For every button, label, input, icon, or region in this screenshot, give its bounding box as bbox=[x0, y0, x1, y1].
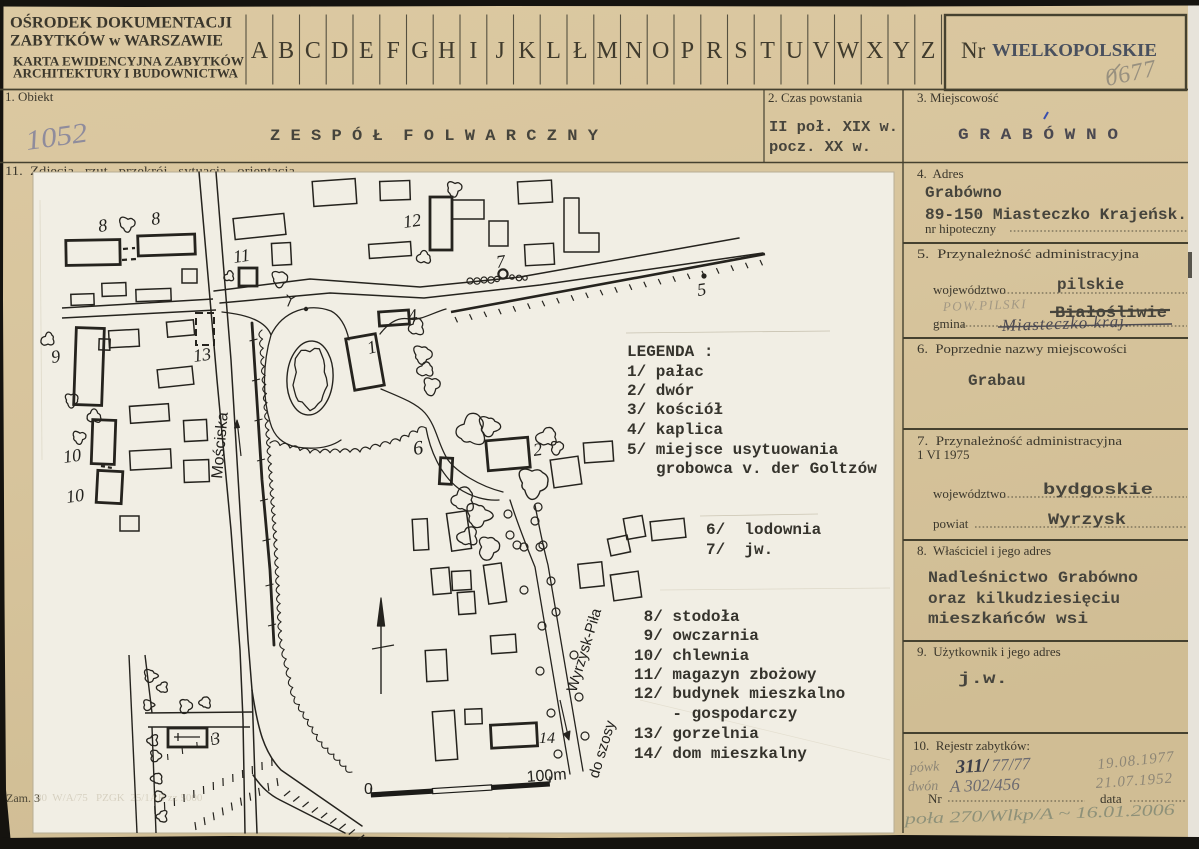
svg-text:Z E S P Ó Ł F O L W A R C Z N: Z E S P Ó Ł F O L W A R C Z N Y bbox=[270, 126, 598, 145]
svg-text:M: M bbox=[596, 38, 617, 64]
svg-text:POW.PILSKI: POW.PILSKI bbox=[942, 296, 1028, 314]
svg-text:K: K bbox=[518, 38, 536, 64]
svg-text:80 W/A/75 PZGK 25/1AB zz 5: 80 W/A/75 PZGK 25/1AB zz 5000 bbox=[36, 792, 203, 804]
svg-text:6. Poprzednie nazwy miejscowo: 6. Poprzednie nazwy miejscowości bbox=[917, 341, 1127, 356]
svg-text:B: B bbox=[278, 38, 294, 64]
svg-text:Nadleśnictwo Grabówno: Nadleśnictwo Grabówno bbox=[928, 569, 1138, 587]
svg-text:grobowca v. der Goltzów: grobowca v. der Goltzów bbox=[656, 460, 877, 478]
svg-text:10: 10 bbox=[65, 485, 86, 507]
svg-text:R: R bbox=[706, 38, 722, 64]
svg-text:W: W bbox=[837, 38, 860, 64]
svg-text:D: D bbox=[331, 38, 348, 64]
svg-text:4/ kaplica: 4/ kaplica bbox=[627, 421, 723, 439]
svg-text:ARCHITEKTURY I BUDOWNICTWA: ARCHITEKTURY I BUDOWNICTWA bbox=[13, 67, 238, 81]
svg-text:14/ dom mieszkalny: 14/ dom mieszkalny bbox=[634, 745, 807, 763]
svg-text:14: 14 bbox=[539, 730, 555, 747]
svg-text:L: L bbox=[546, 38, 561, 64]
svg-text:5. Przynależność administracy: 5. Przynależność administracyjna bbox=[917, 246, 1139, 261]
svg-text:Nr: Nr bbox=[928, 791, 942, 806]
svg-text:A 302/456: A 302/456 bbox=[948, 775, 1020, 796]
svg-text:ZABYTKÓW w WARSZAWIE: ZABYTKÓW w WARSZAWIE bbox=[10, 33, 223, 50]
svg-text:pilskie: pilskie bbox=[1057, 276, 1124, 294]
svg-text:U: U bbox=[786, 38, 803, 64]
svg-text:3. Miejscowość: 3. Miejscowość bbox=[917, 90, 999, 105]
svg-text:j.w.: j.w. bbox=[958, 670, 1008, 688]
svg-text:V: V bbox=[812, 38, 830, 64]
svg-text:O: O bbox=[652, 38, 669, 64]
svg-text:9/ owczarnia: 9/ owczarnia bbox=[634, 627, 759, 645]
svg-text:13/ gorzelnia: 13/ gorzelnia bbox=[634, 725, 759, 743]
svg-text:11: 11 bbox=[232, 245, 251, 267]
svg-text:13: 13 bbox=[192, 344, 213, 366]
svg-text:10: 10 bbox=[62, 445, 83, 467]
svg-text:77/77: 77/77 bbox=[991, 754, 1032, 775]
svg-text:LEGENDA :: LEGENDA : bbox=[627, 343, 713, 361]
svg-text:2/ dwór: 2/ dwór bbox=[627, 382, 694, 400]
svg-text:1 VI 1975: 1 VI 1975 bbox=[917, 447, 969, 462]
svg-text:gmina: gmina bbox=[933, 316, 966, 331]
svg-text:12: 12 bbox=[402, 210, 423, 232]
svg-text:F: F bbox=[386, 38, 399, 64]
svg-text:mieszkańców wsi: mieszkańców wsi bbox=[928, 610, 1088, 628]
svg-text:1. Obiekt: 1. Obiekt bbox=[5, 89, 54, 104]
svg-text:oraz kilkudziesięciu: oraz kilkudziesięciu bbox=[928, 590, 1120, 608]
svg-text:województwo: województwo bbox=[933, 282, 1006, 297]
svg-text:100m: 100m bbox=[526, 766, 567, 786]
svg-text:1/ pałac: 1/ pałac bbox=[627, 363, 704, 381]
svg-text:Grabau: Grabau bbox=[968, 372, 1026, 390]
svg-text:G: G bbox=[411, 38, 428, 64]
svg-text:10. Rejestr zabytków:: 10. Rejestr zabytków: bbox=[913, 738, 1030, 753]
svg-text:E: E bbox=[359, 38, 374, 64]
svg-text:6/ lodownia: 6/ lodownia bbox=[706, 521, 822, 539]
svg-text:województwo: województwo bbox=[933, 486, 1006, 501]
svg-text:Y: Y bbox=[893, 38, 910, 64]
svg-text:Nr: Nr bbox=[961, 38, 986, 63]
svg-text:X: X bbox=[866, 38, 883, 64]
svg-text:Z: Z bbox=[921, 38, 936, 64]
svg-text:H: H bbox=[438, 38, 455, 64]
svg-text:2. Czas powstania: 2. Czas powstania bbox=[768, 90, 862, 105]
svg-text:4. Adres: 4. Adres bbox=[917, 166, 964, 181]
svg-text:Zam. 3: Zam. 3 bbox=[6, 791, 40, 805]
svg-text:11/ magazyn zbożowy: 11/ magazyn zbożowy bbox=[634, 666, 817, 684]
svg-text:P: P bbox=[681, 38, 694, 64]
svg-text:N: N bbox=[625, 38, 642, 64]
svg-text:3/ kościół: 3/ kościół bbox=[627, 401, 723, 419]
svg-text:- gospodarczy: - gospodarczy bbox=[634, 705, 798, 723]
svg-text:WIELKOPOLSKIE: WIELKOPOLSKIE bbox=[992, 40, 1157, 60]
svg-text:II poł. XIX w.: II poł. XIX w. bbox=[769, 119, 898, 136]
svg-text:S: S bbox=[734, 38, 747, 64]
svg-text:J: J bbox=[495, 38, 504, 64]
svg-text:7. Przynależność administracy: 7. Przynależność administracyjna bbox=[917, 433, 1122, 448]
svg-text:311/: 311/ bbox=[954, 755, 991, 778]
svg-text:pówk: pówk bbox=[908, 759, 940, 776]
svg-text:C: C bbox=[305, 38, 321, 64]
svg-text:OŚRODEK DOKUMENTACJI: OŚRODEK DOKUMENTACJI bbox=[10, 15, 232, 32]
svg-text:pocz. XX w.: pocz. XX w. bbox=[769, 139, 871, 156]
svg-text:Wyrzysk: Wyrzysk bbox=[1048, 511, 1126, 529]
svg-text:I: I bbox=[469, 38, 477, 64]
svg-text:A: A bbox=[251, 38, 269, 64]
svg-text:0: 0 bbox=[364, 781, 373, 798]
svg-text:T: T bbox=[760, 38, 775, 64]
svg-text:7/ jw.: 7/ jw. bbox=[706, 541, 773, 559]
svg-text:nr hipoteczny: nr hipoteczny bbox=[925, 221, 997, 236]
svg-text:Ł: Ł bbox=[573, 38, 588, 64]
svg-text:10/ chlewnia: 10/ chlewnia bbox=[634, 647, 750, 665]
svg-text:5/ miejsce usytuowania: 5/ miejsce usytuowania bbox=[627, 441, 839, 459]
svg-text:9. Użytkownik i jego adres: 9. Użytkownik i jego adres bbox=[917, 644, 1061, 659]
svg-text:8. Właściciel i jego adres: 8. Właściciel i jego adres bbox=[917, 543, 1051, 558]
svg-text:G R A B Ó W N O: G R A B Ó W N O bbox=[958, 125, 1118, 144]
svg-text:powiat: powiat bbox=[933, 516, 969, 531]
svg-text:12/ budynek mieszkalno: 12/ budynek mieszkalno bbox=[634, 685, 845, 703]
svg-text:8/ stodoła: 8/ stodoła bbox=[634, 608, 740, 626]
svg-text:Grabówno: Grabówno bbox=[925, 184, 1002, 202]
svg-text:bydgoskie: bydgoskie bbox=[1043, 481, 1153, 499]
